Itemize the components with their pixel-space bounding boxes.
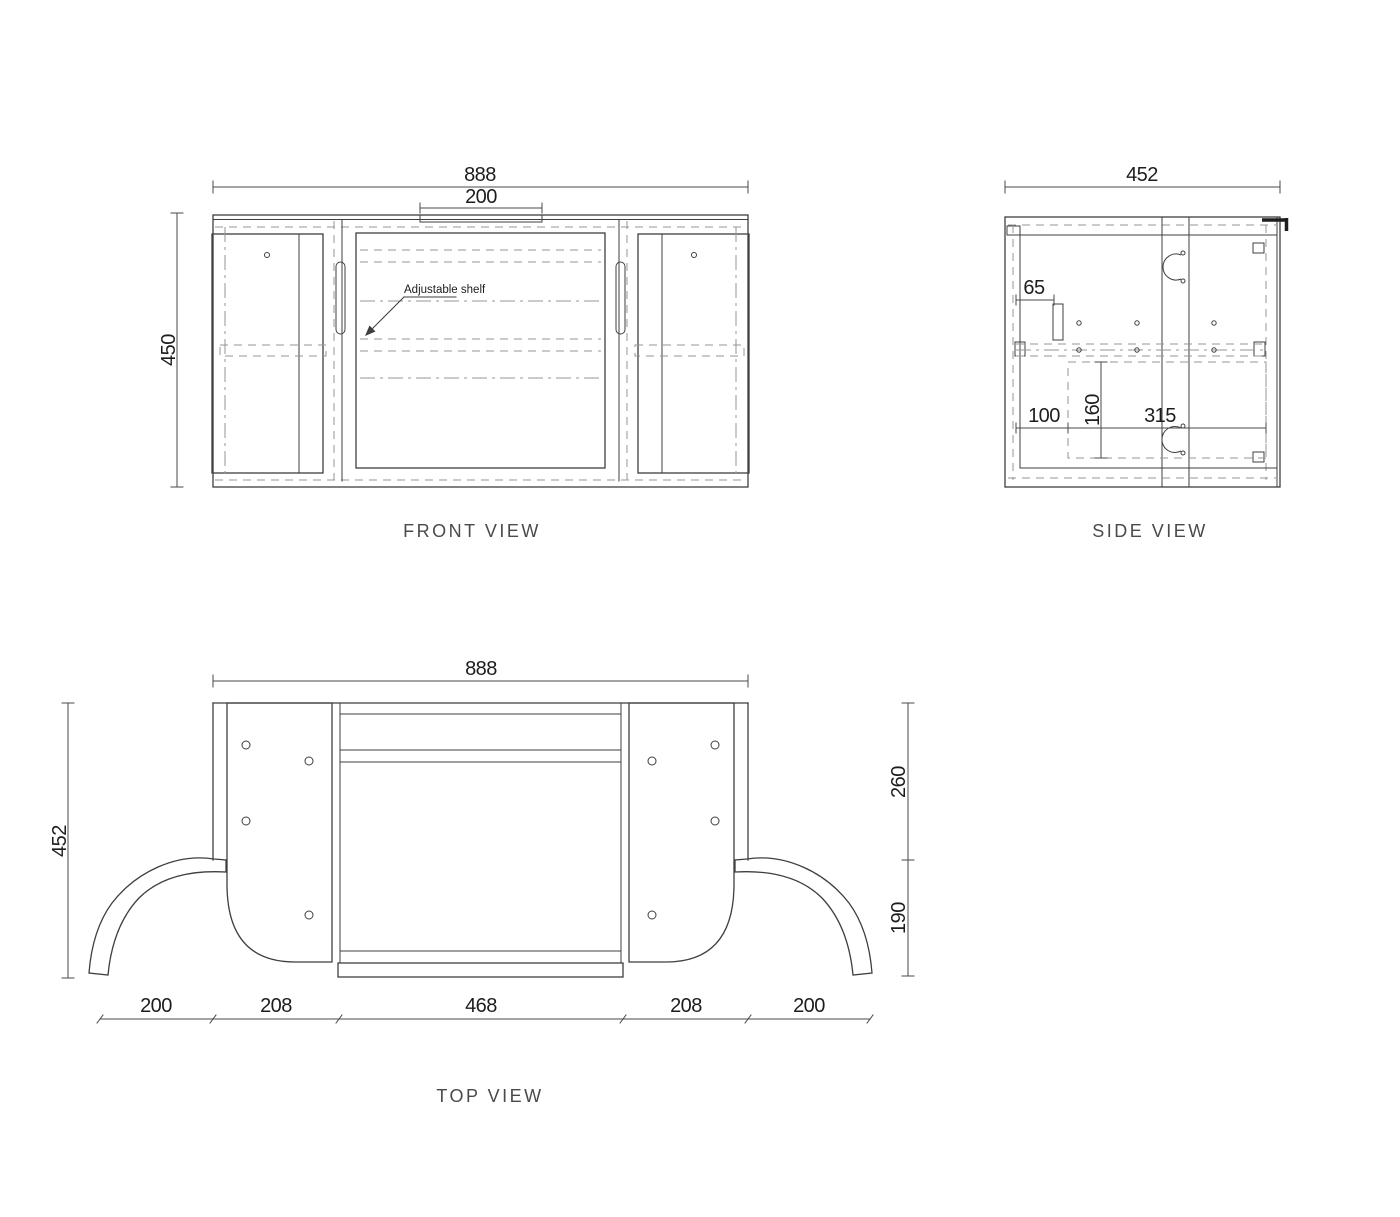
top-overall-width-dimension: 888 [213, 658, 748, 687]
dimension-label: 888 [465, 658, 497, 680]
top-right-door [629, 703, 734, 962]
top-bottom-segments-dimension: 200 208 468 208 200 [97, 995, 873, 1023]
door-outline [227, 703, 332, 962]
dimension-label: 888 [464, 164, 496, 186]
front-lip-rect [338, 963, 623, 977]
cabinet-outer-rect [213, 215, 748, 487]
fixing-hole [648, 757, 656, 765]
right-curved-arm [735, 858, 872, 975]
side-100-315-dimension: 100 315 [1016, 405, 1266, 433]
dimension-label: 450 [158, 334, 180, 366]
front-height-dimension: 450 [158, 213, 183, 487]
hinge-screw-hole [1181, 251, 1185, 255]
fixing-hole [648, 911, 656, 919]
door-outline [638, 234, 749, 473]
front-center-opening [334, 220, 627, 481]
top-right-depth-dimensions: 260 190 [888, 703, 914, 976]
door-outline [629, 703, 734, 962]
fixing-hole [711, 817, 719, 825]
corner-bracket [1253, 452, 1264, 462]
side-outer-rect [1005, 217, 1280, 487]
shelf-pin-hole [1212, 321, 1216, 325]
dimension-label: 468 [465, 995, 497, 1017]
annotation-text: Adjustable shelf [404, 284, 486, 296]
front-right-door [635, 227, 749, 478]
fixing-hole [242, 817, 250, 825]
front-view: 888 200 450 [158, 164, 749, 541]
fixing-hole [305, 757, 313, 765]
side-65-dimension: 65 [1016, 277, 1054, 305]
front-view-label: FRONT VIEW [403, 521, 541, 541]
dimension-label: 452 [1126, 164, 1158, 186]
side-view: 452 [1005, 164, 1287, 541]
side-shelf-and-holes [1016, 321, 1266, 458]
dimension-label: 160 [1082, 394, 1104, 426]
dimension-label: 208 [260, 995, 292, 1017]
fixing-hole [305, 911, 313, 919]
hinge-cup-arc [1163, 254, 1181, 280]
dimension-label: 65 [1023, 277, 1045, 299]
dimension-label: 260 [888, 766, 910, 798]
dimension-label: 200 [465, 186, 497, 208]
side-cabinet-outline [1005, 217, 1287, 487]
hinge-plate-profile [1053, 304, 1063, 340]
side-view-label: SIDE VIEW [1092, 521, 1208, 541]
shelf-pin-hole [1077, 321, 1081, 325]
front-cabinet-outline [213, 215, 748, 487]
hinge-slot [616, 262, 625, 334]
dimension-label: 452 [49, 825, 71, 857]
front-left-door [212, 227, 326, 478]
top-center-box [338, 703, 623, 977]
dimension-label: 100 [1028, 405, 1060, 427]
shelf-pin-hole [1135, 321, 1139, 325]
top-curved-arms [89, 858, 872, 975]
top-view-label: TOP VIEW [436, 1086, 543, 1106]
hinge-slot [336, 262, 345, 334]
left-curved-arm [89, 858, 226, 975]
top-left-door [227, 703, 332, 962]
fixing-hole [242, 741, 250, 749]
front-recess-width-dimension: 200 [420, 186, 542, 213]
side-160-dimension: 160 [1082, 362, 1107, 458]
dimension-label: 190 [888, 902, 910, 934]
hidden-shelf-band [220, 345, 326, 356]
hinge-screw-hole [1181, 279, 1185, 283]
dimension-label: 315 [1144, 405, 1176, 427]
drawing-canvas: 888 200 450 [0, 0, 1400, 1217]
dimension-label: 208 [670, 995, 702, 1017]
hinge-cup-arc [1162, 427, 1181, 453]
door-outline [212, 234, 323, 473]
adjustable-shelf-annotation: Adjustable shelf [365, 284, 486, 336]
dimension-label: 200 [140, 995, 172, 1017]
hinge-screw-hole [1181, 451, 1185, 455]
handle-hole [265, 253, 270, 258]
dimension-label: 200 [793, 995, 825, 1017]
hidden-shelf-band [635, 345, 744, 356]
top-depth-dimension: 452 [49, 703, 74, 978]
side-depth-dimension: 452 [1005, 164, 1280, 193]
leader-line [369, 297, 404, 332]
corner-bracket [1253, 243, 1264, 253]
handle-hole [692, 253, 697, 258]
top-cabinet-outline [213, 703, 748, 871]
hinge-screw-hole [1181, 424, 1185, 428]
top-view: 888 452 [49, 658, 914, 1106]
fixing-hole [711, 741, 719, 749]
technical-drawing: 888 200 450 [0, 0, 1400, 1217]
